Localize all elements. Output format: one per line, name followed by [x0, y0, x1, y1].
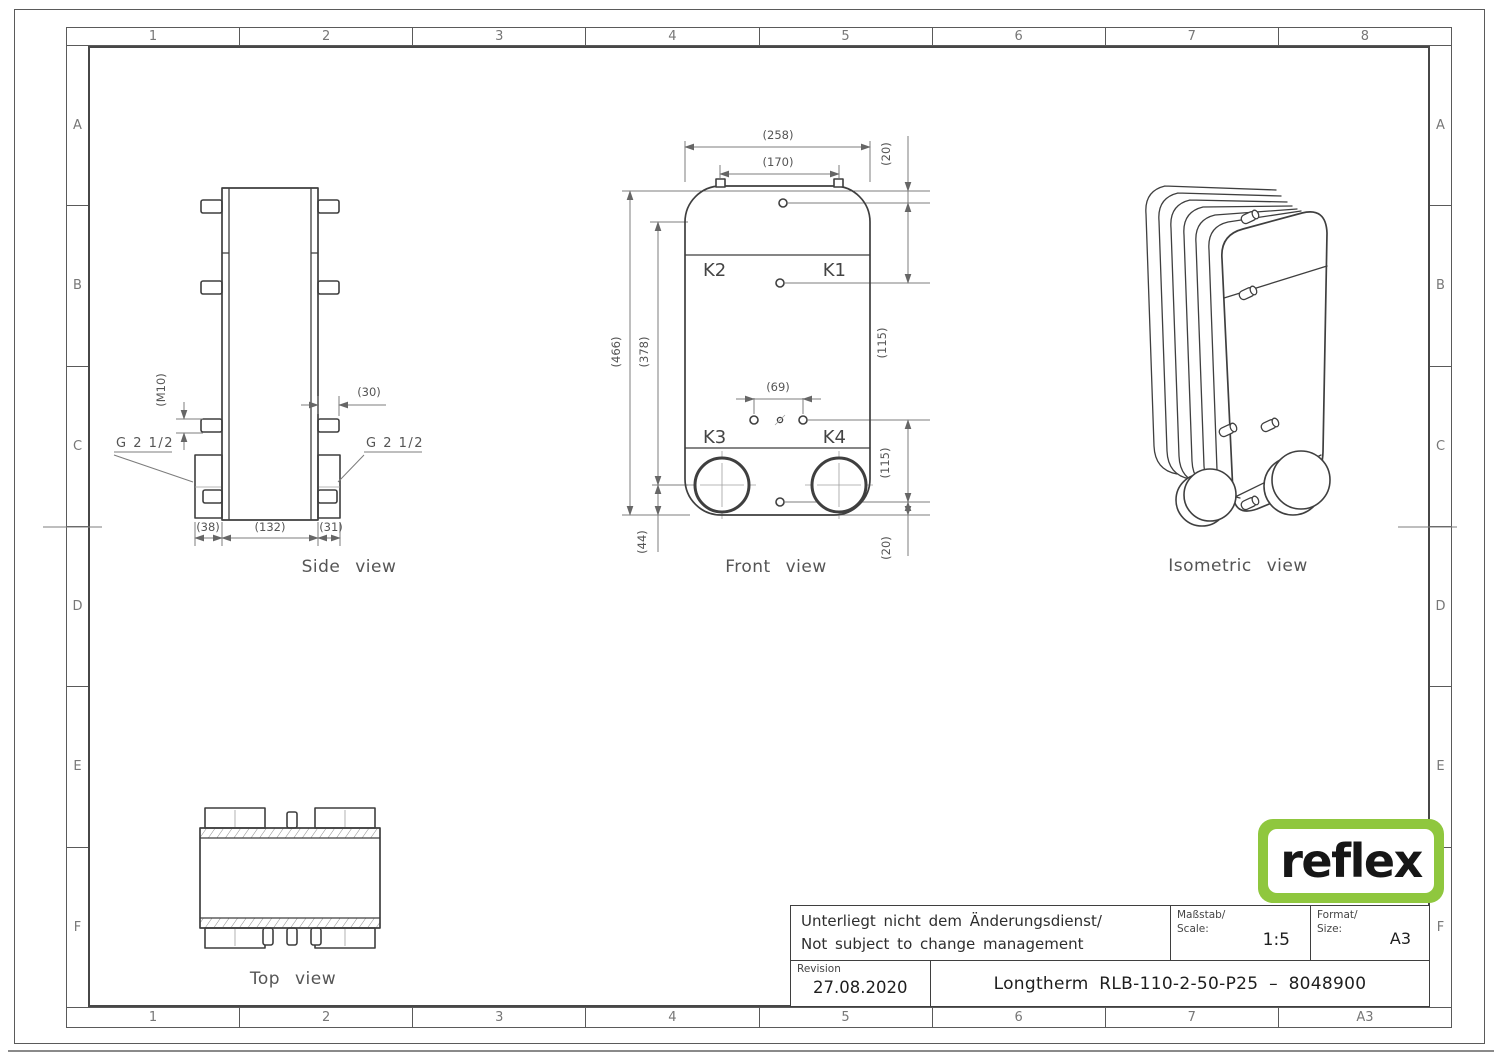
scale-value: 1:5: [1263, 930, 1290, 950]
top-body: [200, 828, 380, 928]
front-top-stud: [716, 179, 725, 187]
top-gasket-band: [200, 918, 380, 928]
side-view-caption: Side view: [302, 557, 397, 577]
top-gasket-band: [200, 828, 380, 838]
side-body-inner-lines: [222, 188, 318, 520]
dim-115-bottom: (115): [878, 448, 892, 479]
side-right-flange: [318, 455, 340, 518]
dim-m10: (M10): [154, 373, 168, 407]
dim-20-bottom: (20): [879, 536, 893, 560]
dim-132: (132): [255, 520, 286, 534]
dim-466: (466): [609, 337, 623, 368]
reflex-logo-text: reflex: [1268, 829, 1434, 893]
connection-label-left: G 2 1/2: [116, 436, 174, 451]
side-view: (M10) (30) G 2 1/2 G 2 1/2 (38) (132) (3…: [114, 188, 424, 577]
port-label-k2: K2: [703, 260, 726, 281]
top-view: Top view: [200, 808, 380, 989]
dim-38: (38): [196, 520, 220, 534]
front-view: K2 K1 K3 K4 (258) (170) (20) (115) (115)…: [609, 128, 930, 577]
drawing-sheet: 1 2 3 4 5 6 7 8 1 2 3 4 5 6 7 A3 A B C D…: [0, 0, 1500, 1059]
format-value: A3: [1390, 929, 1411, 948]
connection-label-right: G 2 1/2: [366, 436, 424, 451]
change-note-en: Not subject to change management: [801, 933, 1160, 956]
port-label-k1: K1: [823, 260, 846, 281]
drawing-title: Longtherm RLB-110-2-50-P25 – 8048900: [931, 961, 1429, 1006]
change-note-cell: Unterliegt nicht dem Änderungsdienst/ No…: [791, 906, 1171, 960]
format-label-de: Format/: [1317, 909, 1423, 923]
dim-44: (44): [635, 530, 649, 554]
front-view-caption: Front view: [725, 557, 827, 577]
dim-258: (258): [763, 128, 794, 142]
format-cell: Format/ Size: A3: [1311, 906, 1429, 960]
title-block: Unterliegt nicht dem Änderungsdienst/ No…: [790, 905, 1430, 1007]
scale-label-de: Maßstab/: [1177, 909, 1304, 923]
dim-115-top: (115): [875, 328, 889, 359]
scale-cell: Maßstab/ Scale: 1:5: [1171, 906, 1311, 960]
revision-date: 27.08.2020: [813, 978, 907, 997]
revision-label: Revision: [797, 963, 924, 977]
dim-69: (69): [766, 380, 790, 394]
dim-170: (170): [763, 155, 794, 169]
dim-20-top: (20): [879, 142, 893, 166]
front-stud-holes: [750, 199, 807, 506]
side-body: [222, 188, 318, 520]
iso-plate-stack: [1146, 186, 1301, 498]
front-top-stud: [834, 179, 843, 187]
dim-30: (30): [357, 385, 381, 399]
revision-cell: Revision 27.08.2020: [791, 961, 931, 1006]
reflex-logo: reflex: [1258, 819, 1444, 903]
isometric-view-caption: Isometric view: [1168, 556, 1308, 576]
port-label-k3: K3: [703, 427, 726, 448]
dim-378: (378): [637, 337, 651, 368]
side-left-flange: [195, 455, 222, 518]
port-label-k4: K4: [823, 427, 846, 448]
top-view-caption: Top view: [249, 969, 336, 989]
isometric-view: Isometric view: [1146, 186, 1330, 576]
dim-31: (31): [319, 520, 343, 534]
change-note-de: Unterliegt nicht dem Änderungsdienst/: [801, 910, 1160, 933]
